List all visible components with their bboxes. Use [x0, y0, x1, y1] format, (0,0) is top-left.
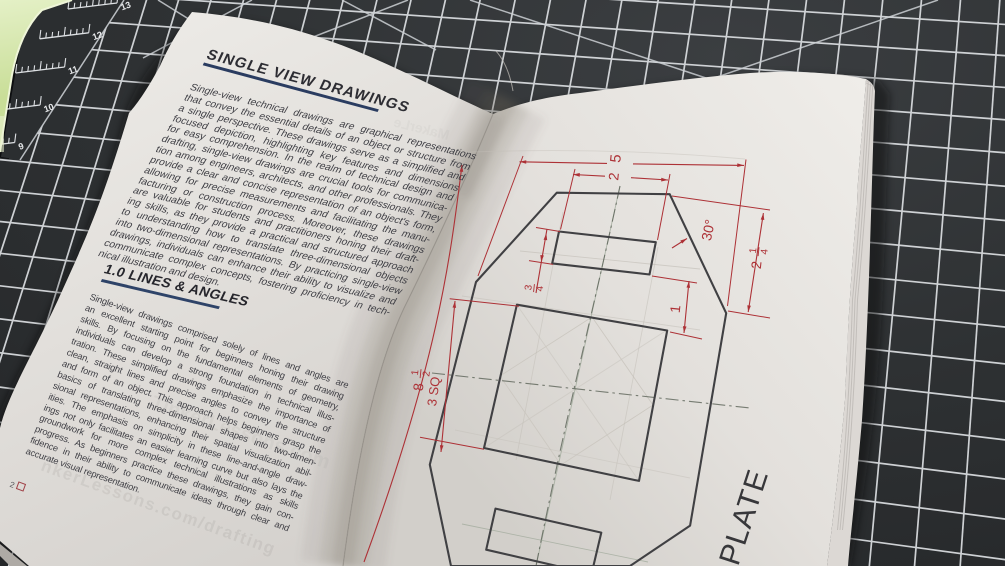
- svg-text:5: 5: [607, 153, 625, 163]
